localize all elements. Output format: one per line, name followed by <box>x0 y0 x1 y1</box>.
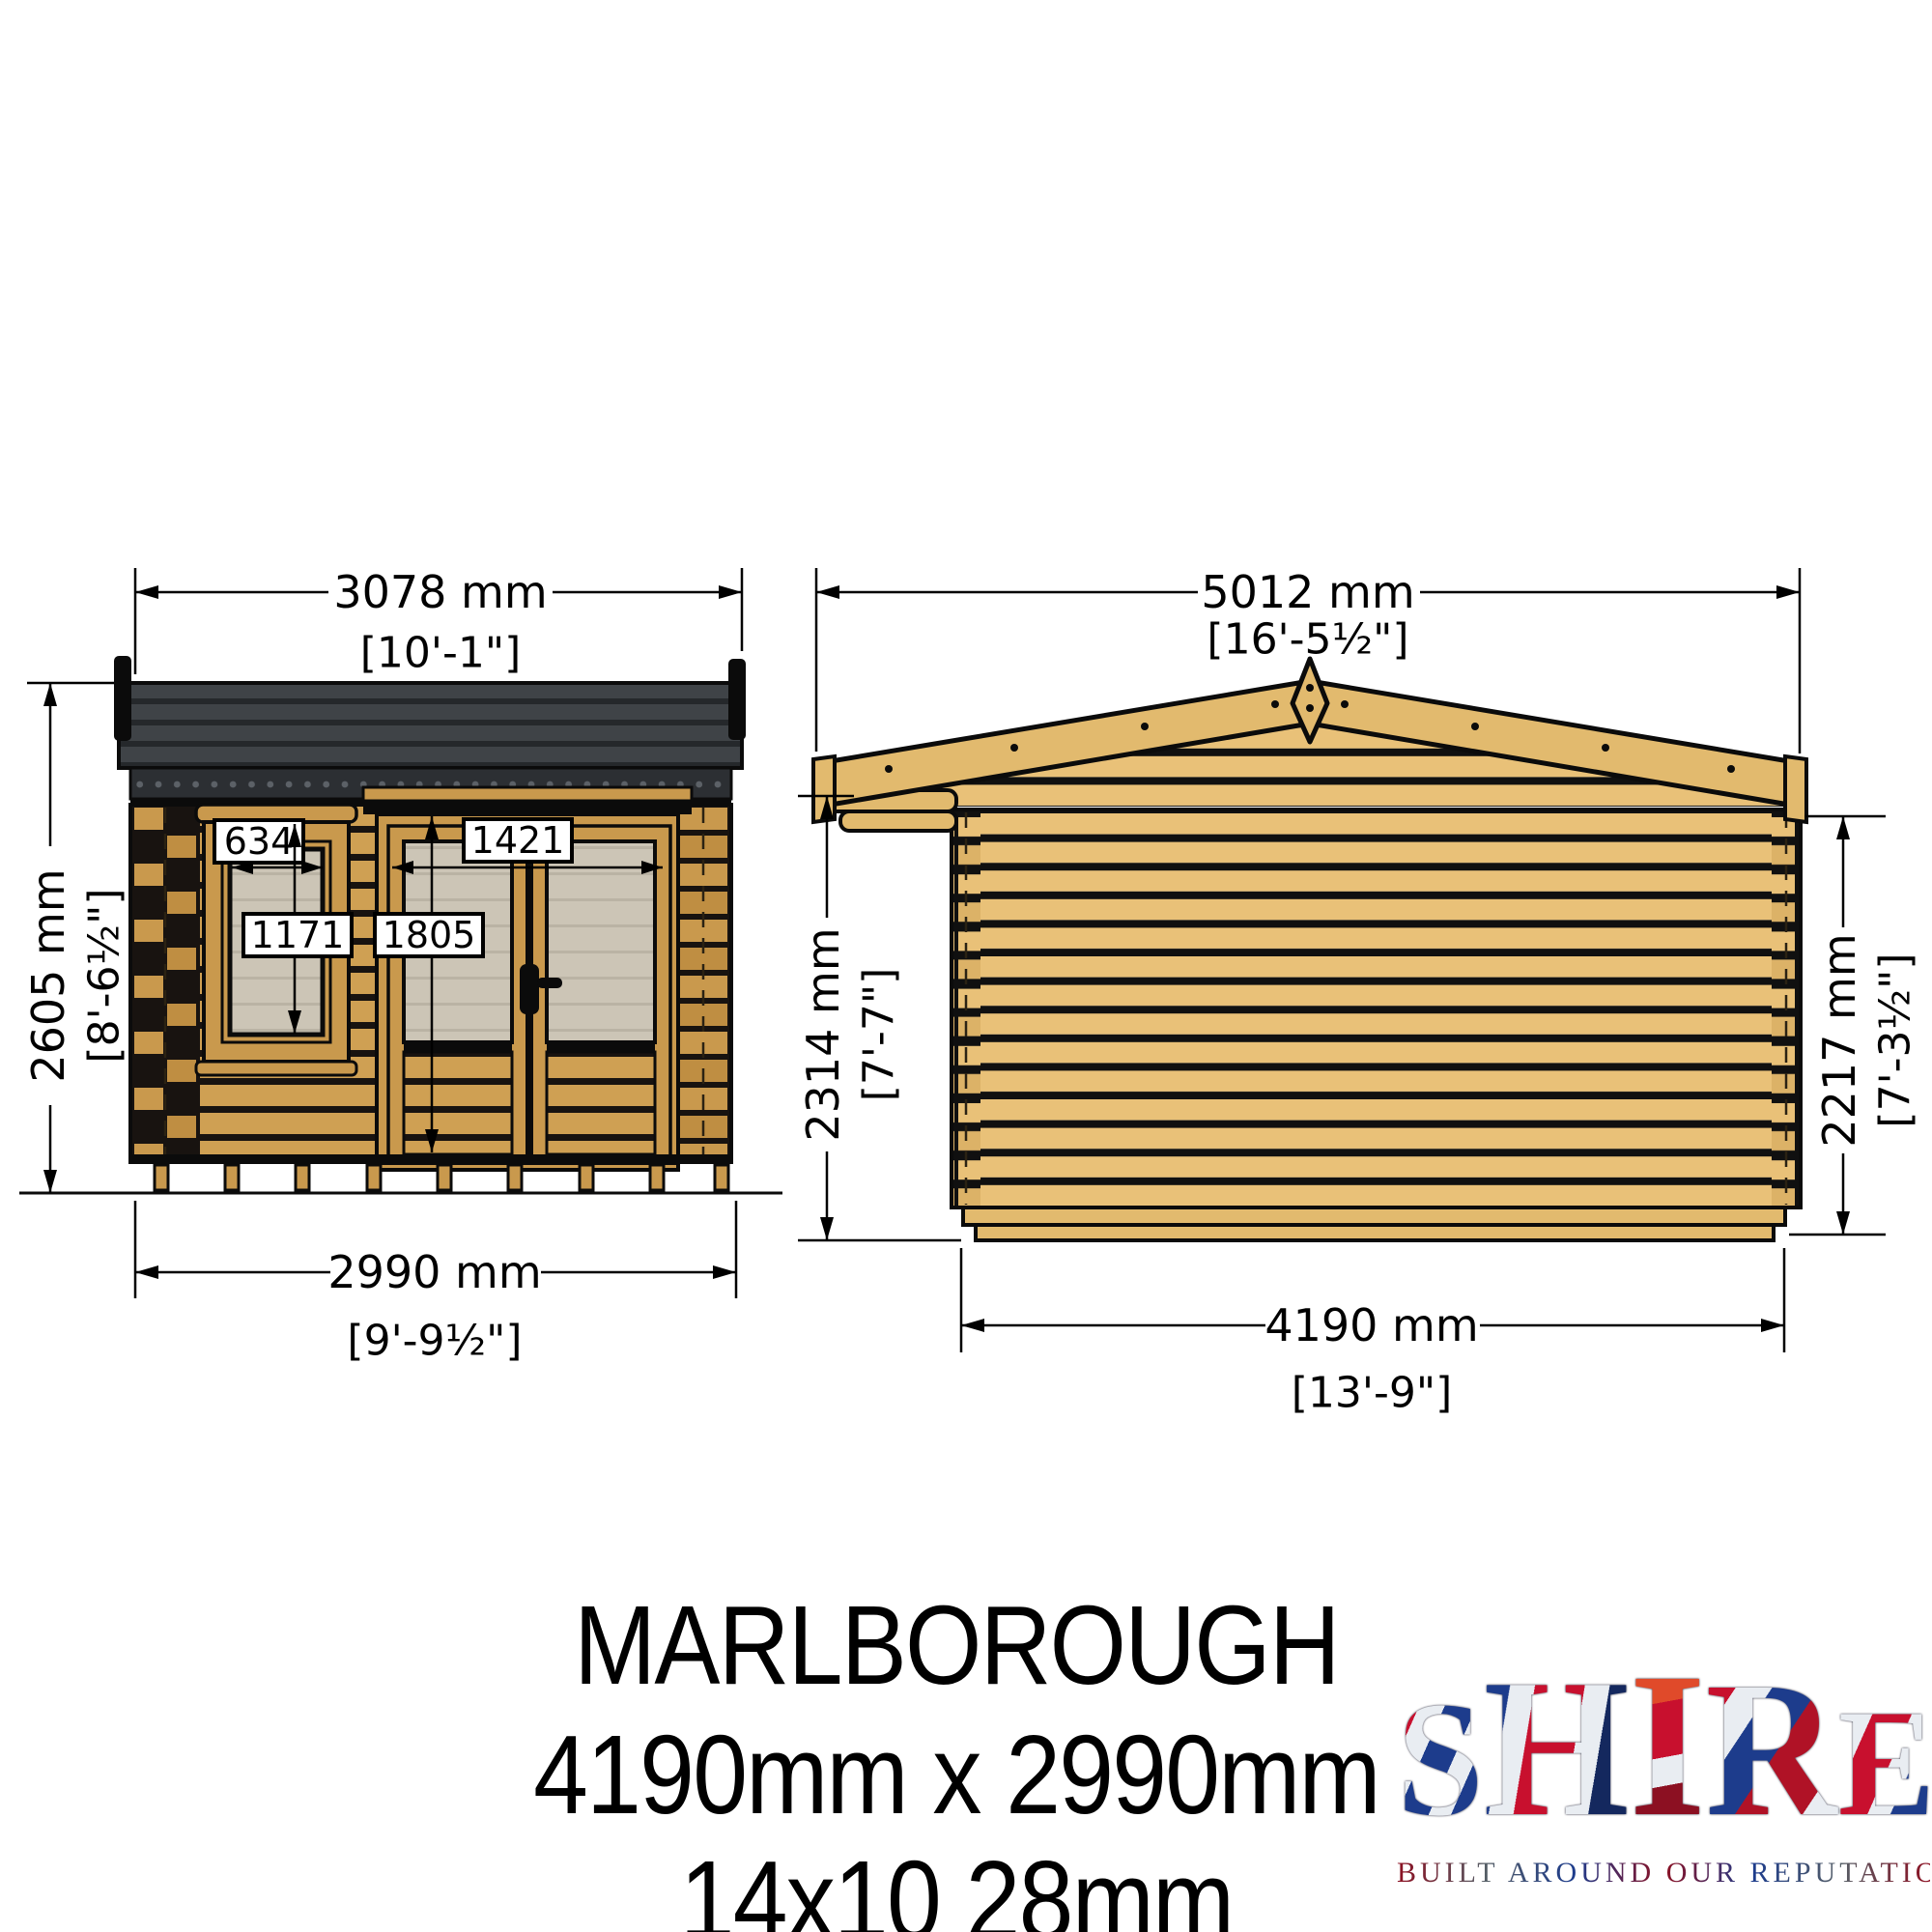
side-front-height-ft: [7'-7"] <box>855 968 904 1102</box>
logo-letter-s: S <box>1397 1677 1484 1841</box>
front-width-ft: [10'-1"] <box>360 629 522 678</box>
logo-letter-e: E <box>1838 1688 1932 1840</box>
door-head-trim <box>363 787 692 801</box>
front-roof-left-bargeboard-end <box>114 656 131 741</box>
front-base-mm: 2990 mm <box>327 1246 541 1298</box>
side-skid-lower <box>976 1225 1774 1240</box>
side-elevation <box>813 659 1806 1240</box>
side-right-eave-end-cap <box>1785 756 1806 822</box>
door-width-label: 1421 <box>471 819 565 862</box>
front-base-ft: [9'-9½"] <box>347 1317 522 1366</box>
front-roof-right-bargeboard-end <box>728 659 746 740</box>
door-handle <box>520 964 539 1014</box>
side-wall-logs <box>952 810 1801 1207</box>
side-rear-height-mm: 2217 mm <box>1813 933 1865 1147</box>
front-height-ft: [8'-6½"] <box>80 888 129 1063</box>
side-base-mm: 4190 mm <box>1264 1299 1478 1351</box>
finial-screw-bottom <box>1306 704 1314 712</box>
door-left-lower-panel <box>404 1052 512 1154</box>
front-height-mm: 2605 mm <box>22 868 74 1082</box>
door-lintel <box>363 801 692 814</box>
finial-screw-top <box>1306 684 1314 692</box>
window-width-label: 634 <box>224 820 295 863</box>
shire-logo-letters: S H I R E <box>1397 1642 1903 1855</box>
side-canopy-board-lower <box>840 811 956 831</box>
shire-logo: S H I R E BUILT AROUND OUR REPUTATION <box>1397 1642 1930 1932</box>
door-right-lower-panel <box>547 1052 655 1154</box>
window-sill <box>196 1062 356 1075</box>
door-right-glazing <box>547 841 655 1042</box>
door-height-label: 1805 <box>383 914 476 956</box>
logo-letter-h: H <box>1484 1650 1630 1847</box>
door-handle-lever <box>537 978 562 988</box>
front-roof <box>119 683 742 768</box>
side-front-height-mm: 2314 mm <box>797 927 849 1141</box>
front-base-rail <box>130 1154 731 1164</box>
logo-tagline: BUILT AROUND OUR REPUTATION <box>1397 1857 1930 1889</box>
technical-drawing-sheet: 3078 mm [10'-1"] 2605 mm [8'-6½"] 2990 m… <box>0 0 1932 1932</box>
front-width-mm: 3078 mm <box>333 566 547 618</box>
side-width-mm: 5012 mm <box>1201 566 1414 618</box>
side-skid-upper <box>963 1207 1785 1225</box>
logo-letter-i: I <box>1630 1642 1706 1849</box>
side-base-ft: [13'-9"] <box>1292 1369 1453 1418</box>
window-height-label: 1171 <box>251 914 345 956</box>
side-rear-height-ft: [7'-3½"] <box>1871 952 1920 1127</box>
logo-letter-r: R <box>1706 1654 1838 1847</box>
side-width-ft: [16'-5½"] <box>1207 615 1408 665</box>
